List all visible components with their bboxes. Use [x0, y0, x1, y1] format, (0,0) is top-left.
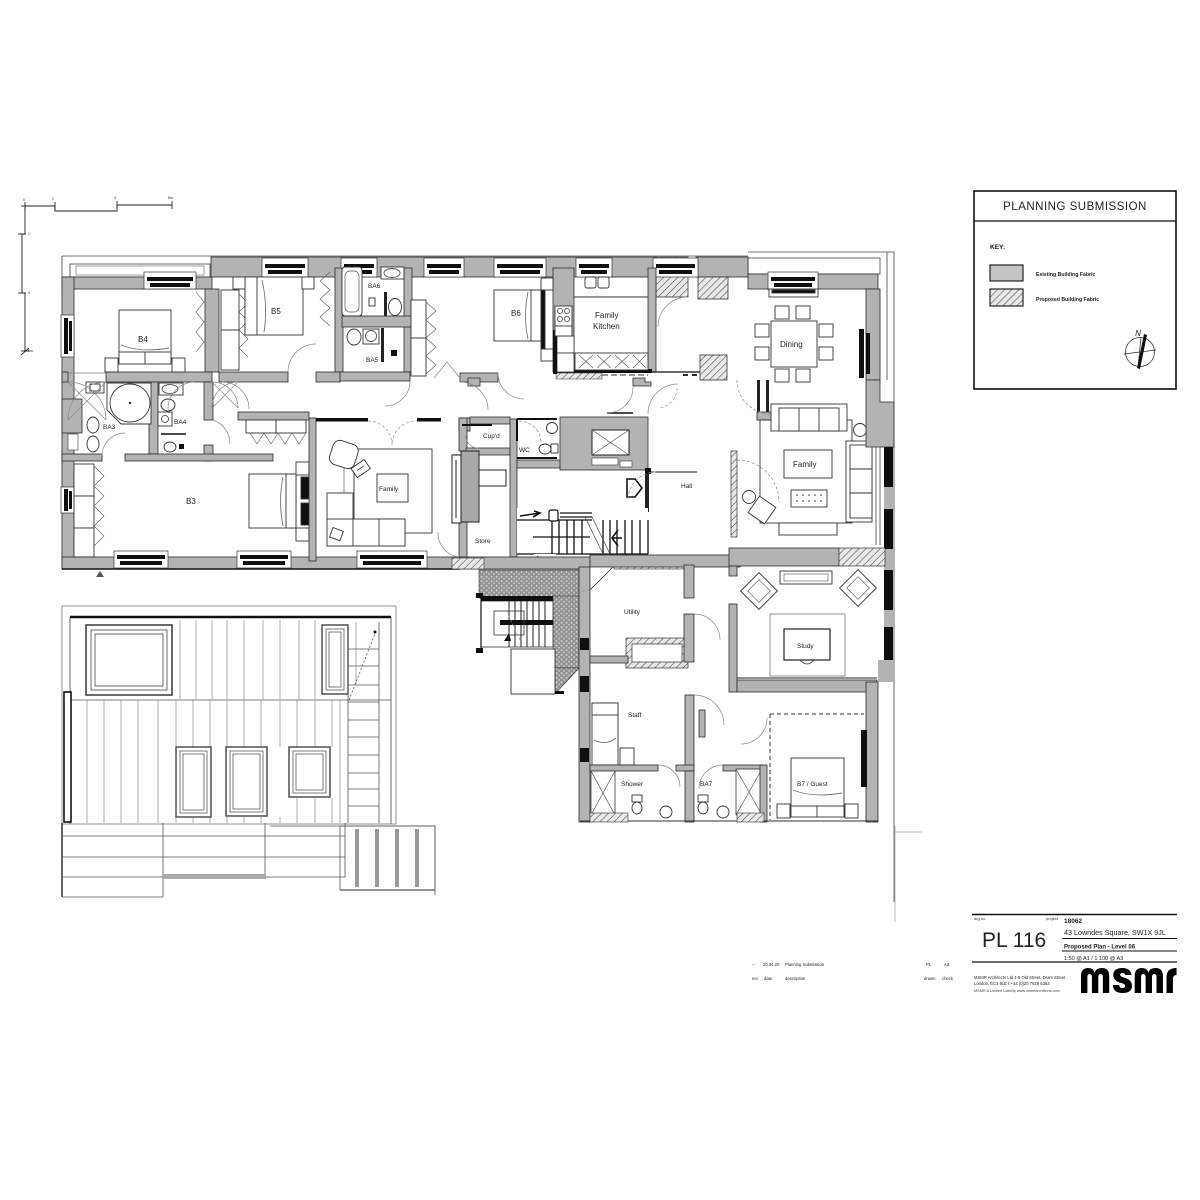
svg-text:BA6: BA6 — [368, 283, 381, 290]
svg-text:A3: A3 — [944, 962, 950, 967]
svg-text:Existing Building Fabric: Existing Building Fabric — [1036, 272, 1095, 278]
svg-text:Family: Family — [793, 460, 817, 469]
svg-text:Shower: Shower — [621, 781, 644, 788]
svg-text:Planning Submission: Planning Submission — [785, 962, 825, 967]
svg-text:43 Lowndes Square, SW1X 9JL: 43 Lowndes Square, SW1X 9JL — [1064, 928, 1166, 937]
svg-text:Dining: Dining — [780, 340, 803, 349]
svg-text:PL 116: PL 116 — [982, 929, 1046, 952]
svg-text:B7 / Guest: B7 / Guest — [797, 781, 828, 788]
svg-text:MSMR Architects Ltd 4-6 Old: MSMR Architects Ltd 4-6 Old Street, Dram… — [974, 975, 1066, 980]
svg-text:BA5: BA5 — [366, 357, 379, 364]
svg-text:Staff: Staff — [628, 712, 641, 719]
svg-text:1:50 @ A1 / 1:100 @ A3: 1:50 @ A1 / 1:100 @ A3 — [1064, 956, 1123, 962]
svg-text:BA4: BA4 — [174, 419, 187, 426]
svg-text:Utility: Utility — [624, 609, 641, 616]
svg-text:Family: Family — [379, 486, 399, 493]
svg-text:3: 3 — [114, 196, 116, 200]
svg-text:Proposed Building Fabric: Proposed Building Fabric — [1036, 297, 1099, 303]
svg-text:date: date — [764, 976, 773, 981]
svg-text:BA7: BA7 — [700, 781, 713, 788]
svg-text:drawn: drawn — [924, 976, 936, 981]
svg-text:WC: WC — [519, 447, 530, 454]
svg-text:1: 1 — [52, 197, 54, 201]
svg-text:18062: 18062 — [1064, 918, 1082, 925]
svg-text:London, EC1 9LE t +44 (0)20: London, EC1 9LE t +44 (0)20 7628 6363 — [974, 981, 1050, 986]
svg-text:Kitchen: Kitchen — [593, 322, 620, 331]
svg-text:MSMR A Limited Liability ww: MSMR A Limited Liability www.msmrarchite… — [974, 989, 1060, 993]
svg-text:Store: Store — [475, 538, 491, 545]
svg-text:drg no: drg no — [974, 916, 986, 921]
svg-text:B3: B3 — [186, 497, 196, 506]
svg-text:description: description — [785, 976, 806, 981]
svg-text:check: check — [942, 976, 954, 981]
svg-text:B4: B4 — [138, 335, 148, 344]
svg-text:project: project — [1046, 916, 1059, 921]
svg-text:5m: 5m — [28, 349, 33, 353]
svg-text:Cup'd: Cup'd — [483, 433, 500, 440]
svg-text:20.04.20: 20.04.20 — [763, 962, 780, 967]
svg-text:0: 0 — [23, 198, 25, 202]
svg-text:Proposed Plan - Level 06: Proposed Plan - Level 06 — [1064, 945, 1136, 951]
svg-text:Hall: Hall — [681, 483, 693, 490]
svg-text:Study: Study — [797, 643, 814, 650]
svg-text:KEY:: KEY: — [990, 244, 1005, 251]
svg-text:BA3: BA3 — [103, 424, 116, 431]
svg-text:N: N — [1135, 329, 1141, 338]
svg-text:B6: B6 — [511, 309, 521, 318]
svg-text:Family: Family — [595, 311, 619, 320]
svg-text:3: 3 — [28, 291, 30, 295]
svg-text:rev: rev — [752, 976, 759, 981]
svg-text:PLANNING SUBMISSION: PLANNING SUBMISSION — [1003, 201, 1147, 213]
svg-text:1: 1 — [28, 232, 30, 236]
svg-text:B5: B5 — [271, 307, 281, 316]
svg-text:5m: 5m — [168, 196, 173, 200]
svg-text:PL: PL — [926, 962, 932, 967]
